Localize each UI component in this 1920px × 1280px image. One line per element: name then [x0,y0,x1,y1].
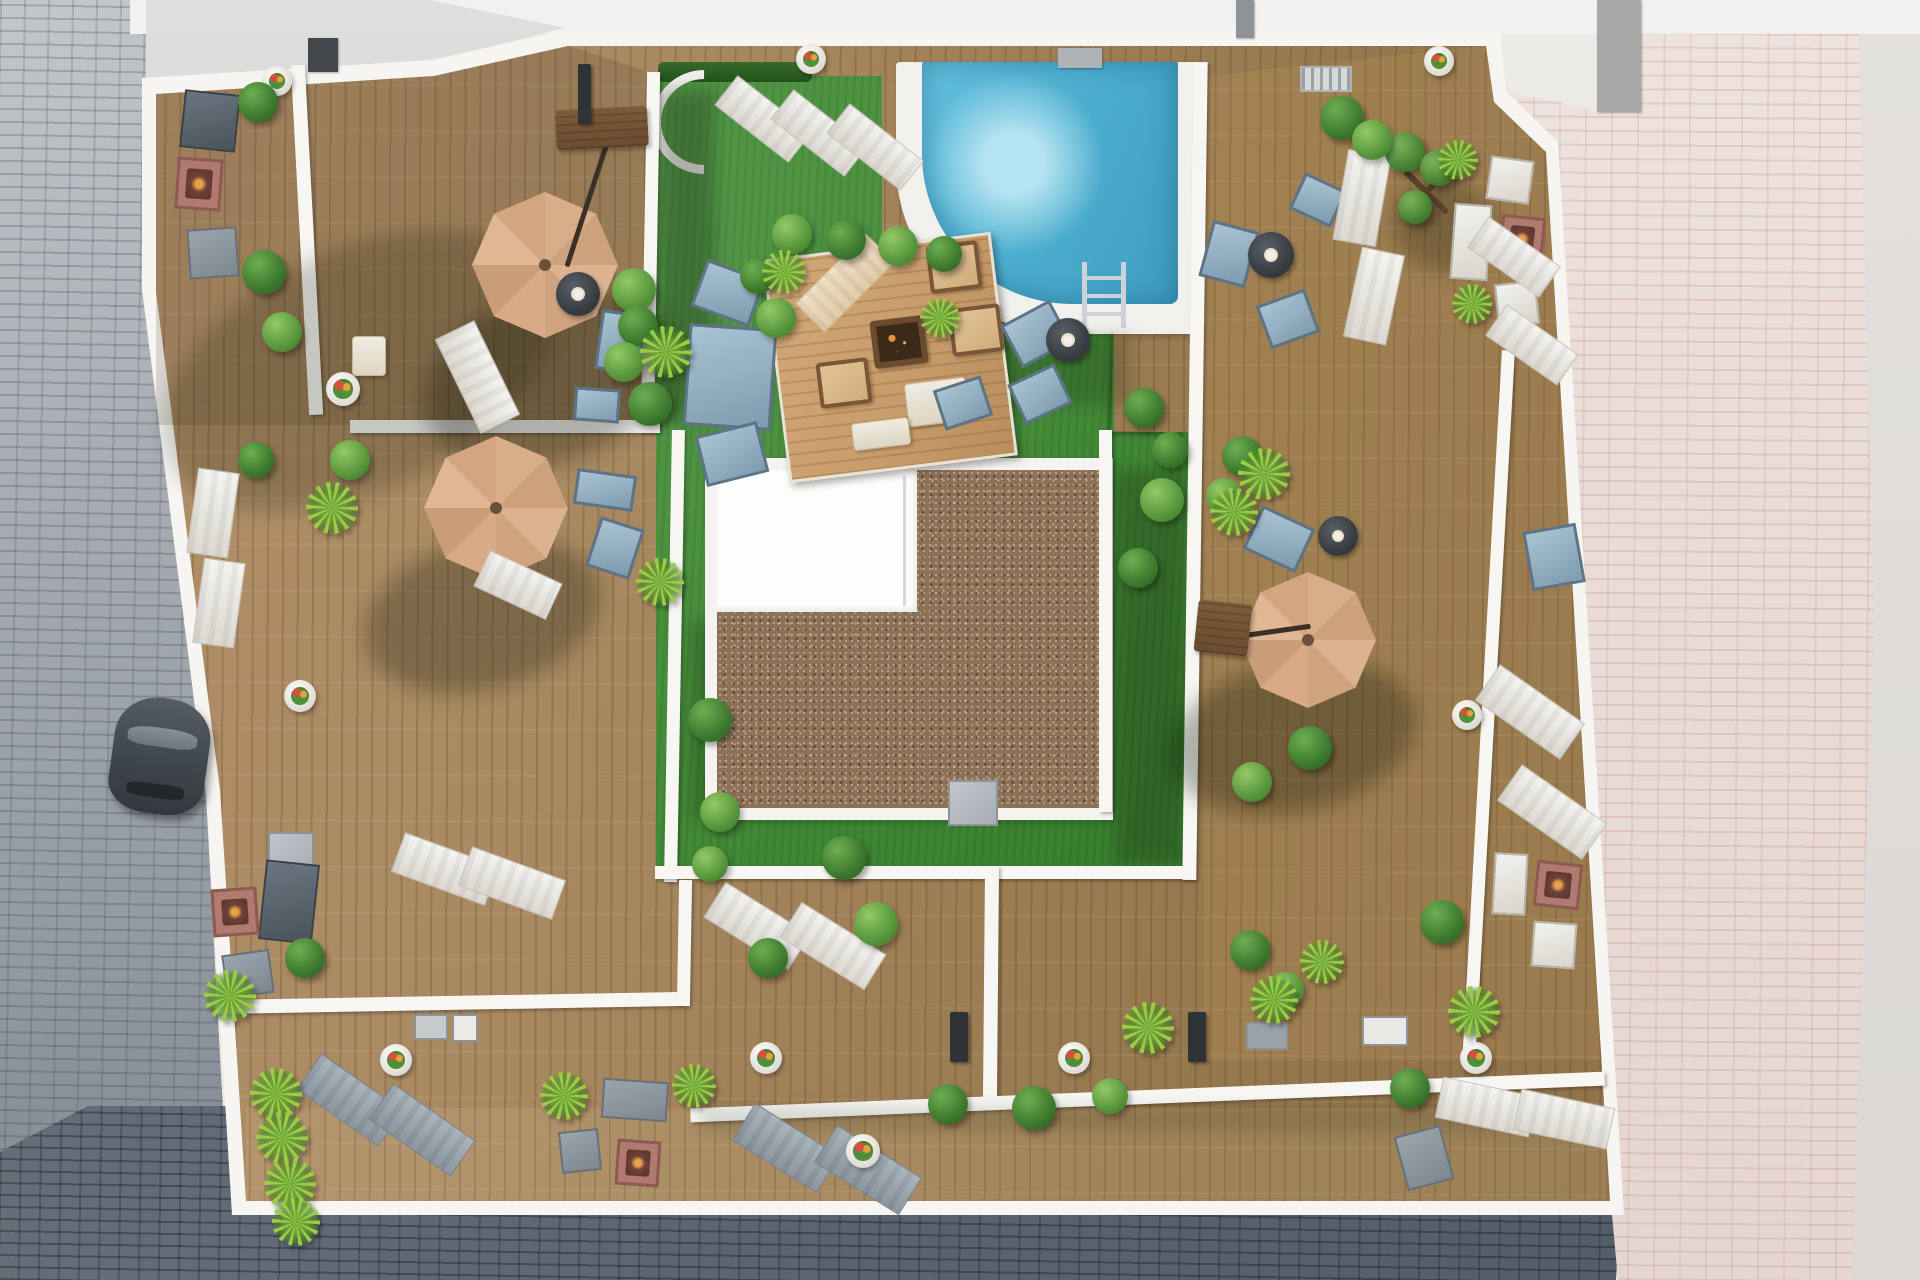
shadow-lawn-strip [1116,470,1186,865]
bush-38 [1352,120,1392,160]
palm-2 [256,1112,308,1164]
bush-39 [1152,432,1188,468]
planter-pot-11 [846,1134,880,1168]
pool-ladder [1082,262,1126,328]
bottomright-fire-square [1533,860,1584,911]
right-fire-round-2 [1318,516,1358,556]
bush-13 [756,298,796,338]
corner-fire-square [210,886,259,937]
bush-19 [822,836,866,880]
bench-cross-table [555,106,649,151]
terraceA-seat-blue [573,386,621,423]
bush-16 [1118,548,1158,588]
terraceA-fire-round [556,272,600,316]
pole-lawn-top [578,64,591,124]
wall-gravel-right [1099,430,1112,812]
bush-18 [700,792,740,832]
lawn-fire-round [1046,318,1090,362]
bush-9 [826,220,866,260]
palm-4 [272,1198,320,1246]
corner-sofa-dark [258,859,320,944]
bush-26 [1230,930,1270,970]
aerial-render-rooftop-terrace-scene [0,0,1920,1280]
bush-14 [1124,388,1164,428]
palm-9 [1250,976,1298,1024]
ac-box-3 [1246,1022,1288,1050]
wall-bottomcenter-divider [983,866,999,1098]
palm-16 [640,326,692,378]
palm-6 [306,482,358,534]
bush-10 [878,226,918,266]
bush-28 [748,938,788,978]
wall-lawn-bottom [655,866,1192,879]
bush-29 [854,902,898,946]
bush-34 [285,938,325,978]
ac-box-4 [1362,1016,1408,1046]
balcony-railing [1300,66,1352,92]
bush-33 [1390,1068,1430,1108]
bottomright-armchair-w [1530,921,1577,970]
heater-post-1 [950,1012,968,1062]
roof-wall-gray [1597,0,1641,112]
core-pipe-line [903,476,906,606]
planter-pot-10 [1452,700,1482,730]
ac-box-1 [414,1014,448,1040]
planter-pot-9 [1460,1042,1492,1074]
palm-20 [920,298,960,338]
terraceA-sofa-dark [179,89,241,153]
bush-3 [262,312,302,352]
egg-sofa [683,323,778,431]
topright-armchair-w1 [1485,155,1535,205]
palm-12 [1122,1002,1174,1054]
palm-8 [1210,488,1258,536]
planter-pot-3 [1424,46,1454,76]
terraceA-white-box [352,336,386,376]
bush-31 [1012,1086,1056,1130]
bush-17 [688,698,732,742]
planter-pot-7 [750,1042,782,1074]
bush-8 [772,214,812,254]
bush-15 [1140,478,1184,522]
terraceA-fire-square [174,156,224,211]
terraceA-armchair [186,226,239,279]
palm-19 [1452,284,1492,324]
bottomstrip-fire-square [614,1139,661,1188]
bush-35 [330,440,370,480]
bottomstrip-armchair-gray [558,1128,602,1174]
bush-36 [238,442,274,478]
palm-10 [1300,940,1344,984]
bush-6 [604,342,644,382]
utility-box [948,780,998,826]
palm-17 [762,250,806,294]
bush-30 [928,1084,968,1124]
palm-14 [540,1072,588,1120]
planter-pot-2 [796,44,826,74]
bush-1 [238,82,278,122]
planter-pot-8 [1058,1042,1090,1074]
bottomright-sofa-w [1491,852,1528,916]
roof-block-2 [1058,48,1102,68]
palm-15 [636,558,684,606]
building-core-white [717,470,917,612]
bush-24 [1232,762,1272,802]
roof-block-3 [1236,0,1254,38]
umbrella-side-table [1193,599,1252,656]
palm-11 [1448,986,1500,1038]
palm-18 [1438,140,1478,180]
outer-sofa-blue [1522,523,1586,591]
parasol-right [1240,572,1376,708]
platform-cushion-3 [815,357,872,409]
planter-pot-4 [326,372,360,406]
bush-32 [1092,1078,1128,1114]
bush-7 [628,382,672,426]
roof-block-1 [308,38,338,72]
bush-2 [242,250,286,294]
heater-post-2 [1188,1012,1206,1062]
palm-13 [672,1064,716,1108]
planter-pot-5 [284,680,316,712]
planter-pot-6 [380,1044,412,1076]
bush-11 [926,236,962,272]
ac-box-2 [452,1014,478,1042]
bush-20 [692,846,728,882]
bush-25 [1420,900,1464,944]
palm-5 [204,970,256,1022]
bottomstrip-sofa-gray [601,1078,670,1123]
right-fire-round [1248,232,1294,278]
tree-canopy-3 [1398,190,1432,224]
bush-23 [1288,726,1332,770]
wall-midleft-vert [677,880,692,1006]
